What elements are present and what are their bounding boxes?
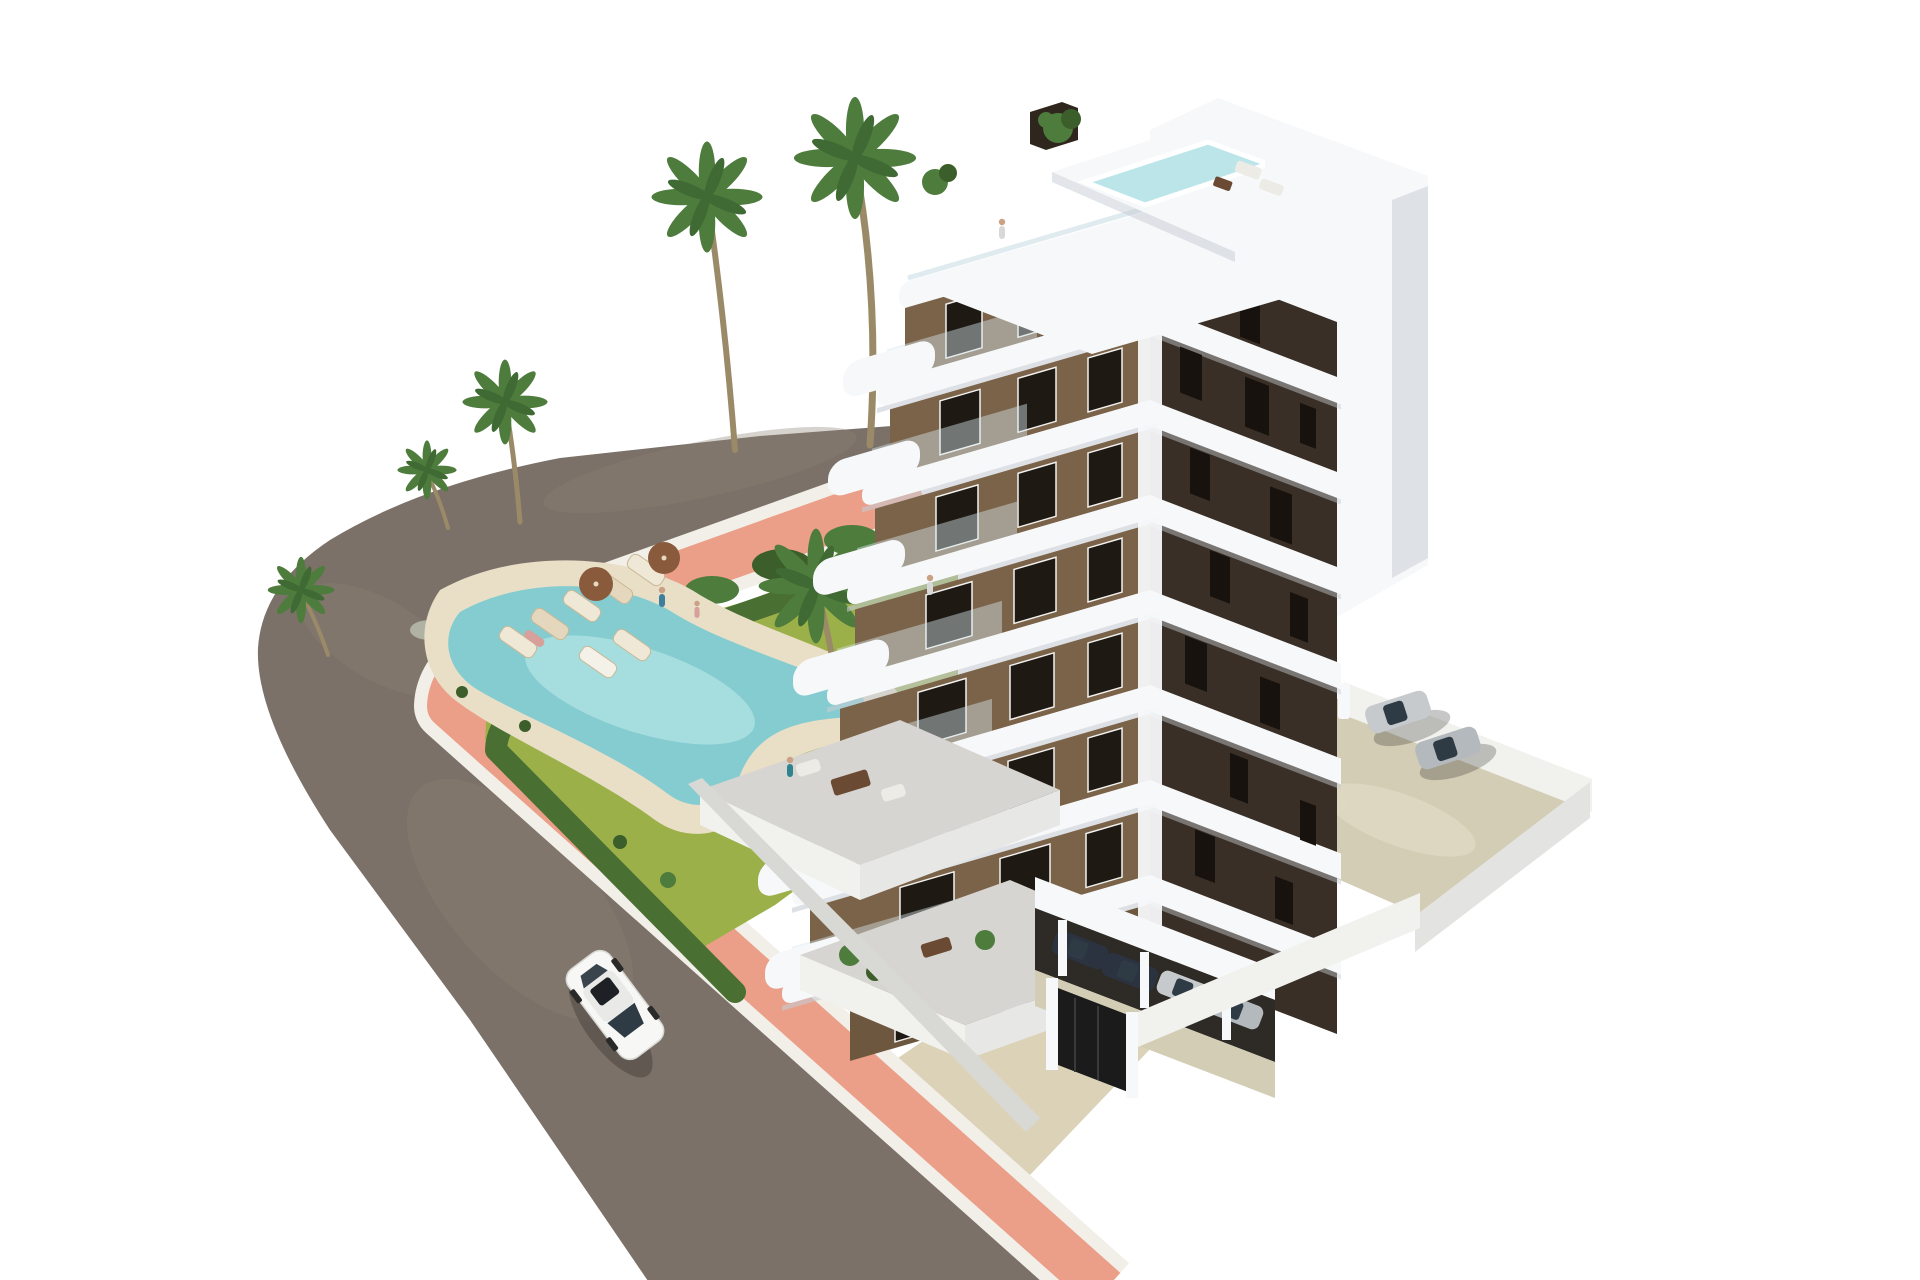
render-canvas: [0, 0, 1920, 1280]
person: [999, 219, 1005, 239]
person: [659, 587, 665, 607]
corner-pillar: [1138, 246, 1162, 966]
building-right-facade: [1144, 248, 1341, 1036]
palm-tree: [397, 440, 456, 499]
palm-tree: [794, 97, 916, 219]
parking-column: [1058, 920, 1067, 976]
right-wall-shading: [1392, 186, 1428, 578]
person: [694, 601, 699, 618]
palm-tree: [268, 557, 335, 624]
palm-tree: [462, 359, 547, 444]
person: [927, 575, 933, 595]
palm-tree: [652, 142, 763, 253]
parking-column: [1140, 952, 1149, 1008]
person: [787, 757, 793, 777]
aerial-architectural-render: [0, 0, 1920, 1280]
